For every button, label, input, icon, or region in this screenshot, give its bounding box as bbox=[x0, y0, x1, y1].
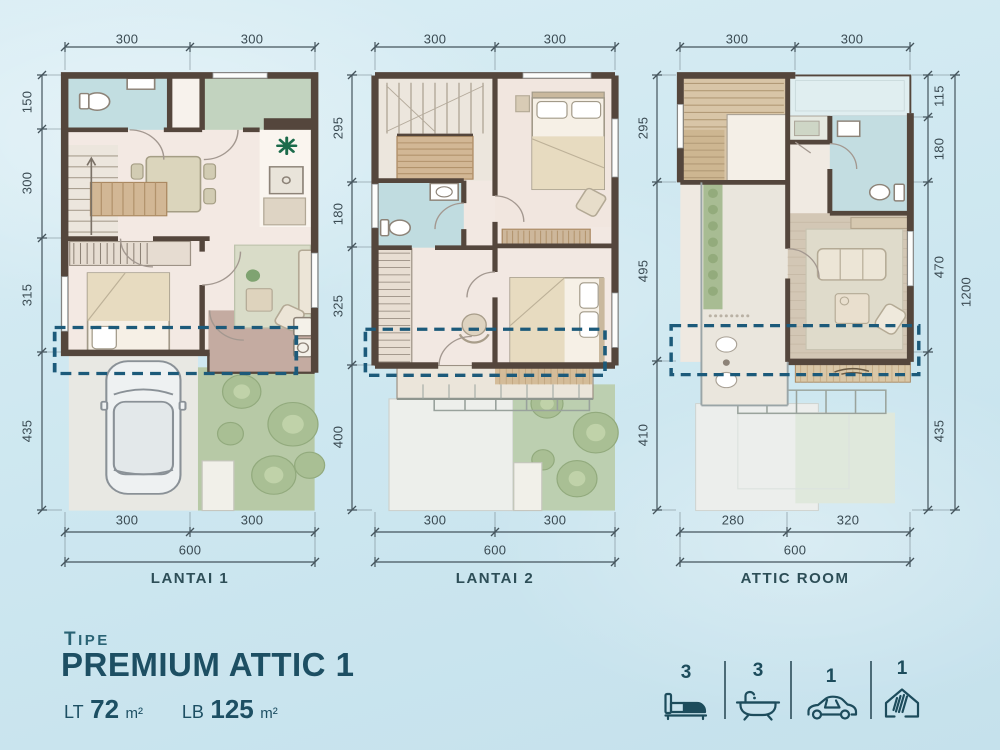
dim-label: 410 bbox=[636, 424, 651, 447]
dim-label: 600 bbox=[179, 543, 202, 558]
dim-label: 115 bbox=[932, 85, 947, 107]
feature-summary: 3 3 1 bbox=[650, 655, 930, 723]
plan-label-lantai-2: LANTAI 2 bbox=[456, 570, 534, 587]
bath-icon bbox=[734, 687, 782, 721]
dim-label: 300 bbox=[116, 32, 139, 47]
dim-label: 600 bbox=[784, 543, 807, 558]
feature-carport: 1 bbox=[794, 655, 868, 723]
dim-label: 600 bbox=[484, 543, 507, 558]
dim-label: 470 bbox=[932, 256, 947, 279]
dim-label: 300 bbox=[424, 32, 447, 47]
dim-label: 300 bbox=[544, 32, 567, 47]
lb-label: LB bbox=[182, 702, 204, 722]
feature-divider bbox=[790, 661, 792, 719]
lb-value: 125 bbox=[210, 694, 253, 724]
lt-label: LT bbox=[64, 702, 84, 722]
plan-label-lantai-1: LANTAI 1 bbox=[151, 570, 229, 587]
dim-label: 300 bbox=[20, 172, 35, 195]
floor-plan-attic-room bbox=[665, 70, 926, 516]
dim-label: 495 bbox=[636, 260, 651, 283]
dim-label: 300 bbox=[841, 32, 864, 47]
dim-label: 1200 bbox=[959, 277, 974, 307]
dim-label: 295 bbox=[331, 117, 346, 140]
lb-unit: m² bbox=[260, 705, 278, 722]
feature-attic: 1 bbox=[874, 655, 930, 723]
dim-label: 300 bbox=[726, 32, 749, 47]
bathroom-count: 3 bbox=[753, 660, 764, 682]
feature-bathrooms: 3 bbox=[728, 655, 788, 723]
dim-label: 320 bbox=[837, 513, 860, 528]
dim-label: 300 bbox=[544, 513, 567, 528]
dim-label: 315 bbox=[20, 284, 35, 307]
dim-label: 435 bbox=[932, 420, 947, 443]
dim-label: 180 bbox=[331, 203, 346, 226]
dim-label: 300 bbox=[424, 513, 447, 528]
page-title: PREMIUM ATTIC 1 bbox=[61, 646, 355, 684]
dim-label: 180 bbox=[932, 138, 947, 161]
car-top-view bbox=[102, 361, 186, 494]
bedroom-count: 3 bbox=[681, 662, 692, 684]
carport-count: 1 bbox=[826, 666, 837, 688]
stove-symbol bbox=[278, 137, 296, 153]
floor-plan-lantai-2 bbox=[359, 70, 631, 516]
dim-label: 325 bbox=[331, 295, 346, 318]
dim-label: 295 bbox=[636, 117, 651, 140]
feature-divider bbox=[724, 661, 726, 719]
bed-icon bbox=[662, 689, 710, 721]
dim-label: 300 bbox=[241, 32, 264, 47]
plan-label-attic-room: ATTIC ROOM bbox=[741, 570, 850, 587]
feature-bedrooms: 3 bbox=[650, 655, 722, 723]
lt-unit: m² bbox=[126, 705, 144, 722]
lt-value: 72 bbox=[90, 694, 119, 724]
area-summary: LT 72 m² LB 125 m² bbox=[64, 694, 278, 725]
floor-plan-lantai-1 bbox=[48, 70, 331, 516]
dim-label: 150 bbox=[20, 91, 35, 114]
car-icon bbox=[804, 693, 858, 721]
dim-label: 435 bbox=[20, 420, 35, 443]
feature-divider bbox=[870, 661, 872, 719]
dim-label: 280 bbox=[722, 513, 745, 528]
floorplan-sheet: { "sheet": { "type_label": "TIPE", "type… bbox=[0, 0, 1000, 750]
dim-label: 300 bbox=[241, 513, 264, 528]
dim-label: 300 bbox=[116, 513, 139, 528]
dim-label: 400 bbox=[331, 426, 346, 449]
attic-house-icon bbox=[882, 685, 922, 721]
attic-count: 1 bbox=[897, 658, 908, 680]
